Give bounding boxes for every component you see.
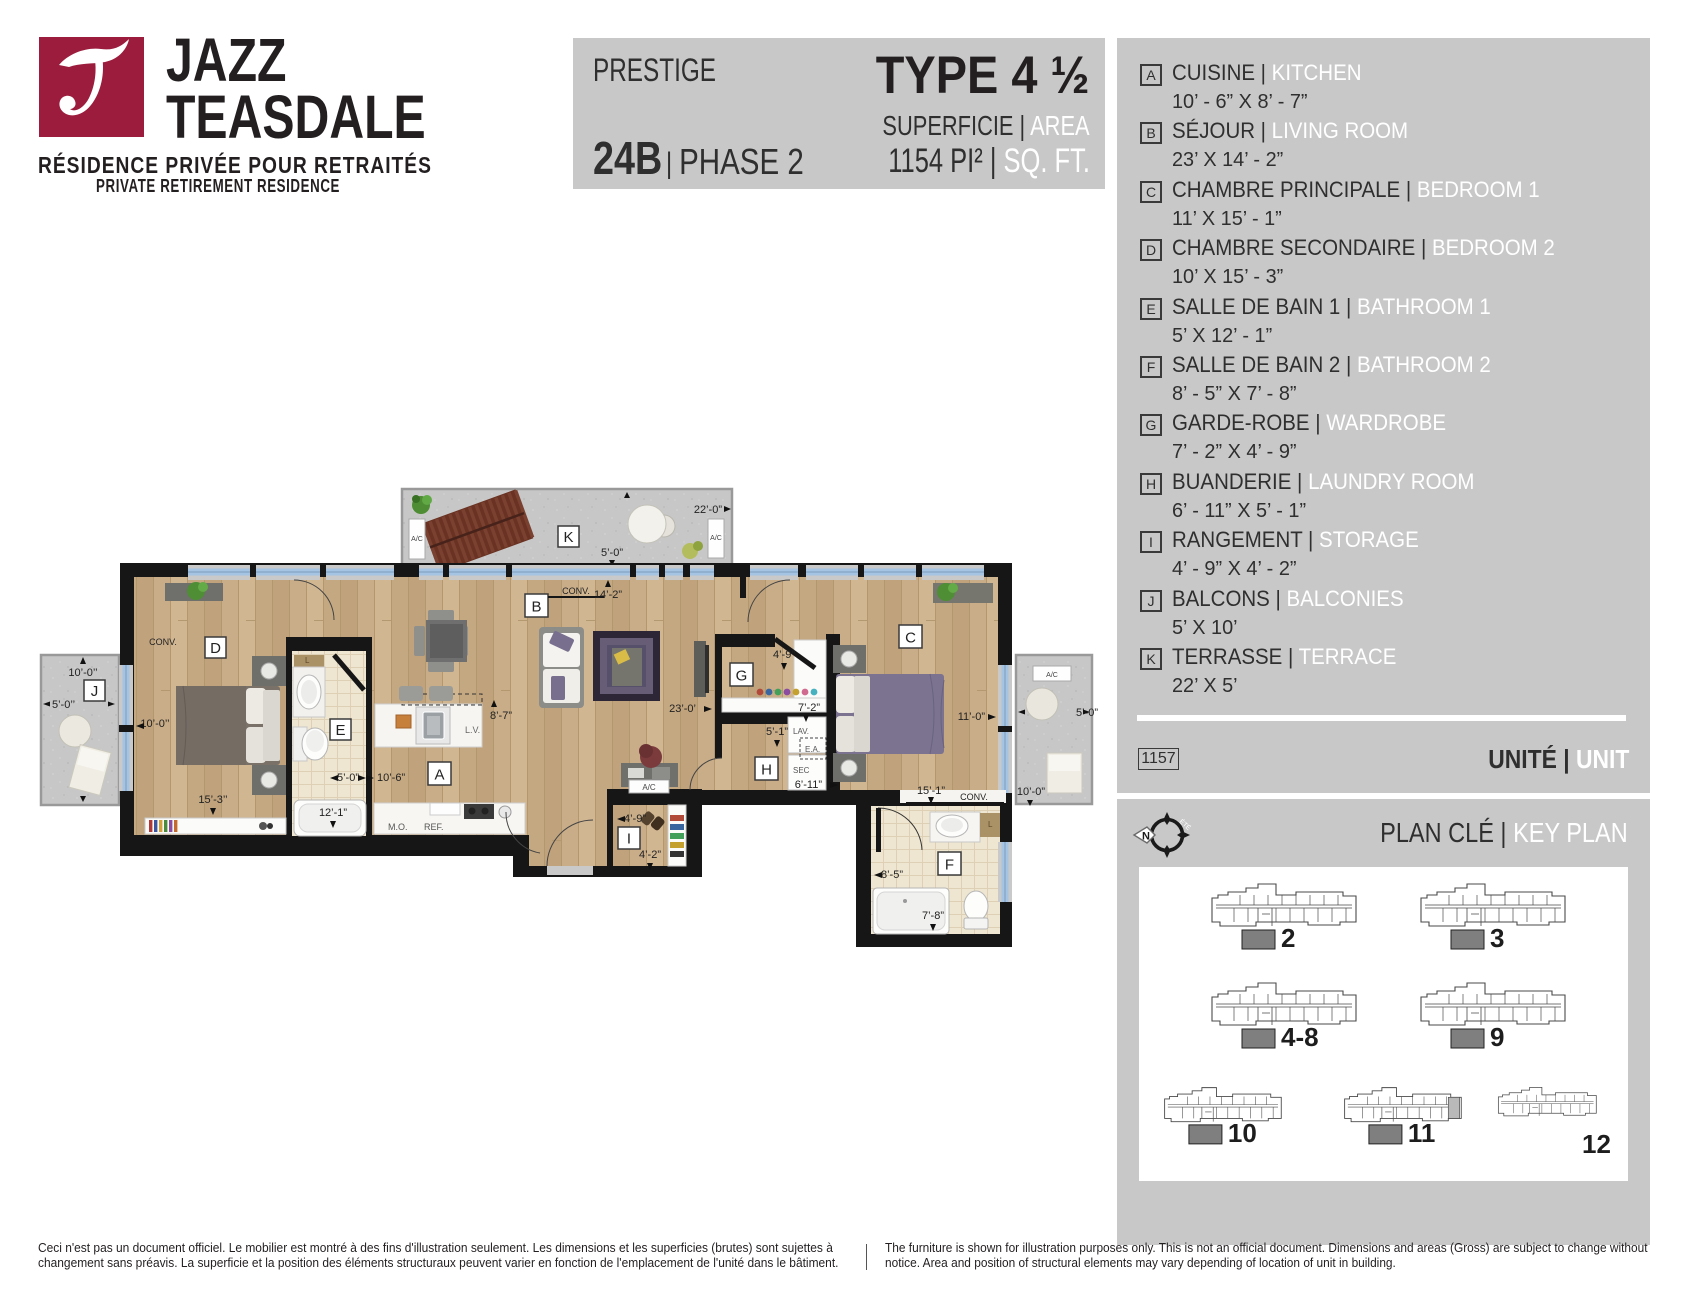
svg-text:4’-2”: 4’-2” [639, 849, 661, 861]
svg-text:J: J [91, 683, 99, 700]
svg-text:N: N [1142, 831, 1150, 843]
svg-text:10: 10 [1228, 1118, 1257, 1148]
svg-text:9: 9 [1490, 1022, 1504, 1052]
svg-text:14’-2”: 14’-2” [594, 589, 622, 601]
svg-text:6’-11”: 6’-11” [795, 779, 823, 791]
svg-text:23’-0’: 23’-0’ [669, 703, 696, 715]
svg-text:8’-7”: 8’-7” [490, 710, 512, 722]
svg-text:L.V.: L.V. [465, 725, 480, 735]
svg-text:10’-0’’: 10’-0’’ [68, 667, 97, 679]
svg-text:12’-1”: 12’-1” [319, 807, 347, 819]
svg-text:A: A [434, 766, 444, 783]
svg-text:5’-0’’: 5’-0’’ [52, 699, 75, 711]
svg-text:10’-0”: 10’-0” [1017, 786, 1045, 798]
svg-text:3: 3 [1490, 923, 1504, 953]
svg-text:C: C [905, 629, 916, 646]
svg-text:CONV.: CONV. [149, 637, 177, 647]
svg-text:22’-0”: 22’-0” [694, 504, 722, 516]
svg-text:CONV.: CONV. [960, 792, 988, 802]
svg-text:B: B [531, 598, 541, 615]
svg-text:A/C: A/C [642, 783, 656, 792]
svg-text:F: F [945, 856, 954, 873]
svg-text:L: L [988, 820, 993, 829]
svg-text:4-8: 4-8 [1281, 1022, 1319, 1052]
svg-text:CONV.: CONV. [562, 586, 590, 596]
svg-text:2: 2 [1281, 923, 1295, 953]
svg-text:10’-0’’: 10’-0’’ [140, 718, 169, 730]
svg-text:M.O.: M.O. [388, 822, 408, 832]
svg-text:11’-0”: 11’-0” [958, 711, 986, 723]
svg-text:8’-5”: 8’-5” [881, 869, 903, 881]
svg-text:5’-0”: 5’-0” [601, 547, 623, 559]
svg-text:4’-9”: 4’-9” [624, 813, 646, 825]
svg-text:L: L [305, 656, 310, 665]
svg-text:SEC: SEC [793, 766, 810, 775]
svg-text:E: E [335, 722, 345, 739]
svg-text:G: G [736, 667, 748, 684]
svg-text:15’-1”: 15’-1” [917, 785, 945, 797]
svg-text:D: D [210, 640, 221, 657]
svg-text:I: I [627, 831, 631, 848]
svg-text:4’-9”: 4’-9” [773, 649, 795, 661]
svg-text:K: K [563, 529, 573, 546]
svg-text:LAV.: LAV. [793, 727, 809, 736]
svg-text:7’-2”: 7’-2” [798, 702, 820, 714]
svg-text:15’-3’’: 15’-3’’ [198, 794, 227, 806]
svg-text:5’-0”: 5’-0” [337, 772, 359, 784]
svg-text:REF.: REF. [424, 822, 444, 832]
svg-text:E.A.: E.A. [805, 745, 820, 754]
svg-text:A/C: A/C [710, 535, 722, 542]
svg-text:A/C: A/C [411, 536, 423, 543]
svg-text:10’-6”: 10’-6” [377, 772, 405, 784]
svg-text:7’-8”: 7’-8” [922, 910, 944, 922]
svg-text:A/C: A/C [1046, 672, 1058, 679]
svg-text:H: H [761, 761, 772, 778]
svg-text:12: 12 [1582, 1129, 1611, 1159]
svg-text:5’-1”: 5’-1” [766, 726, 788, 738]
svg-text:11: 11 [1408, 1118, 1436, 1148]
